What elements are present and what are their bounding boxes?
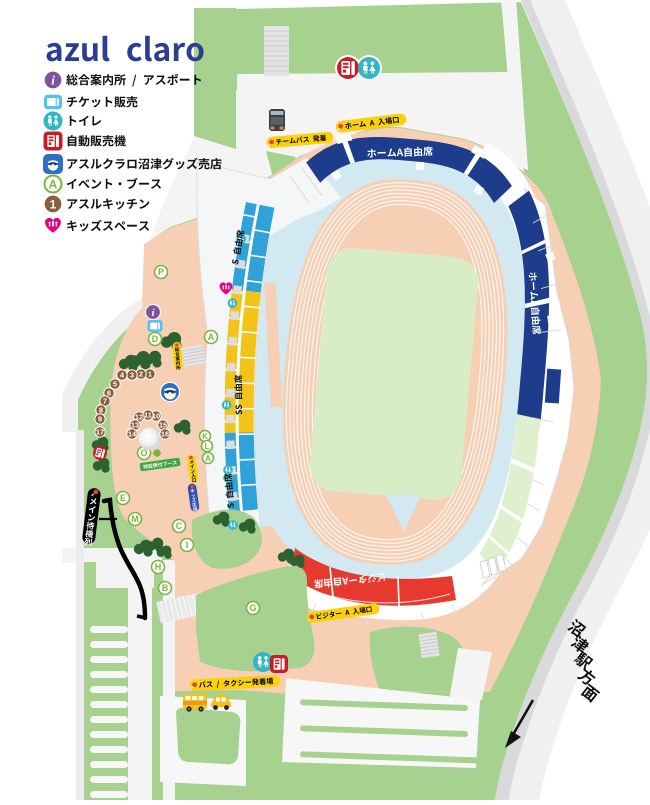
svg-text:1: 1 [50, 198, 57, 212]
svg-text:17: 17 [96, 428, 104, 437]
svg-text:E: E [120, 493, 126, 503]
svg-text:5: 5 [113, 380, 117, 389]
svg-text:i: i [51, 73, 55, 88]
svg-text:B: B [162, 583, 169, 593]
svg-text:L: L [205, 442, 210, 451]
svg-text:16: 16 [161, 430, 169, 439]
svg-text:1: 1 [148, 370, 152, 379]
svg-text:C: C [176, 521, 183, 531]
svg-text:I: I [186, 540, 189, 550]
svg-text:14: 14 [128, 430, 137, 439]
svg-text:K: K [202, 432, 208, 441]
svg-text:A: A [205, 454, 211, 463]
svg-text:D: D [152, 334, 159, 344]
svg-text:3: 3 [130, 371, 134, 380]
svg-text:A: A [208, 332, 215, 342]
svg-text:A: A [49, 178, 58, 192]
svg-text:2: 2 [139, 370, 143, 379]
svg-text:7: 7 [103, 397, 107, 406]
svg-text:G: G [249, 603, 256, 613]
svg-text:P: P [158, 267, 164, 277]
svg-text:11: 11 [144, 411, 152, 420]
svg-text:15: 15 [159, 421, 167, 430]
svg-text:H: H [155, 562, 162, 572]
svg-text:9: 9 [98, 415, 102, 424]
svg-text:M: M [131, 514, 139, 524]
